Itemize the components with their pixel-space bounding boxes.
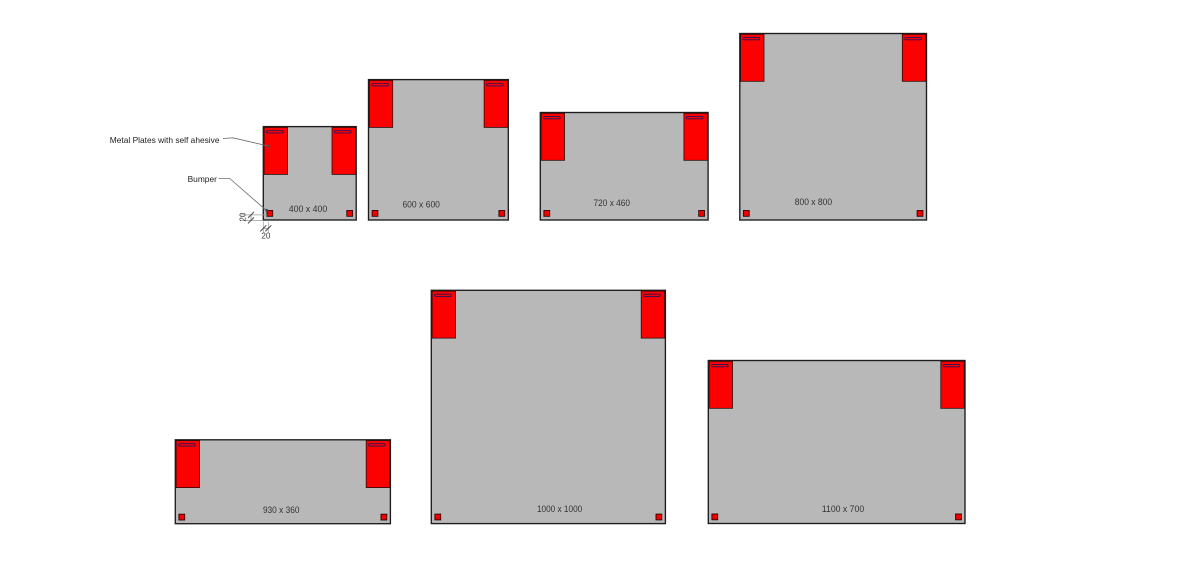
svg-text:1100 x 700: 1100 x 700 (822, 504, 864, 515)
svg-text:20: 20 (238, 212, 248, 221)
svg-text:Bumper: Bumper (188, 174, 217, 184)
svg-text:720 x 460: 720 x 460 (594, 198, 631, 209)
svg-text:800 x 800: 800 x 800 (795, 197, 832, 208)
svg-text:1000 x 1000: 1000 x 1000 (537, 504, 582, 515)
svg-text:20: 20 (261, 231, 270, 241)
svg-text:Metal Plates with self ahesive: Metal Plates with self ahesive (110, 135, 220, 145)
svg-text:930 x 360: 930 x 360 (263, 505, 300, 516)
svg-text:400 x 400: 400 x 400 (289, 204, 328, 215)
svg-text:600 x 600: 600 x 600 (402, 200, 440, 211)
